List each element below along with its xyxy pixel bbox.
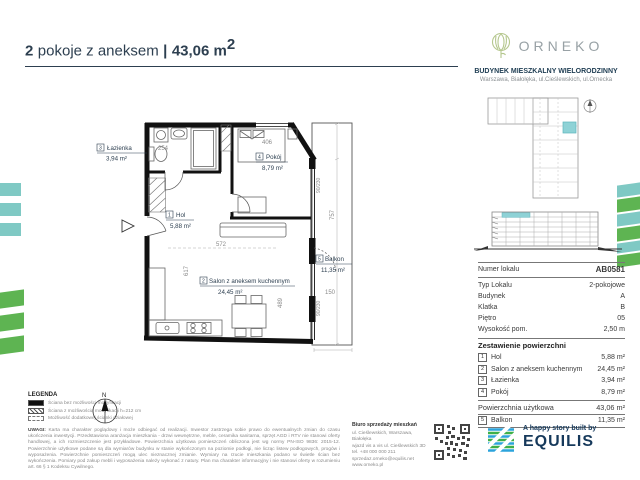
- equilis-name: EQUILIS: [523, 433, 596, 451]
- dining-table: [232, 304, 266, 328]
- compass-north-label: N: [102, 393, 106, 399]
- svg-text:Hol: Hol: [176, 212, 185, 219]
- chair: [251, 329, 262, 337]
- door-swings: [147, 172, 336, 271]
- building-type: BUDYNEK MIESZKALNY WIELORODZINNY: [468, 68, 624, 75]
- dim-757: 757: [330, 209, 336, 220]
- room-area: 3,94 m²: [601, 375, 625, 387]
- dim-254: 254: [158, 146, 169, 152]
- area-summary-title: Zestawienie powierzchni: [478, 339, 625, 352]
- usable-area-row: Powierzchnia użytkowa 43,06 m²: [478, 401, 625, 414]
- dim-406: 406: [262, 140, 273, 146]
- office-website: www.orneko.pl: [352, 463, 426, 470]
- keyplan-drawing: [478, 96, 600, 204]
- room-number-badge: 3: [478, 376, 487, 385]
- room-area-row: 3Łazienka 3,94 m²: [478, 375, 625, 387]
- room-number-badge: 4: [478, 388, 487, 397]
- room-area-row: 2Salon z aneksem kuchennym 24,45 m²: [478, 364, 625, 376]
- svg-text:Łazienka: Łazienka: [107, 145, 132, 152]
- room-number-badge: 1: [478, 353, 487, 362]
- unit-info-table: Numer lokalu AB0581 Typ Lokalu 2-pokojow…: [478, 262, 625, 428]
- orneko-leaf-icon: [489, 32, 513, 60]
- room-number-badge: 2: [478, 365, 487, 374]
- info-row: Budynek A: [478, 291, 625, 302]
- uwagi-text: Karta ma charakter poglądowy i może odbi…: [28, 428, 340, 470]
- info-row: Typ Lokalu 2-pokojowe: [478, 280, 625, 291]
- dim-617: 617: [184, 265, 190, 276]
- dashed-wall-swatch: [28, 416, 44, 421]
- info-label: Piętro: [478, 313, 496, 324]
- floor-plan: 254 406 572 617 489 757 150 90/230 90/23…: [70, 98, 465, 398]
- equilis-tagline: A happy story built by: [523, 425, 596, 432]
- toilet: [149, 147, 154, 161]
- info-label: Typ Lokalu: [478, 280, 512, 291]
- room-number-badge: 5: [478, 416, 487, 425]
- usable-area-value: 43,06 m²: [596, 401, 625, 414]
- office-address-line: ul. Cieślewskich, Warszawa, Białołęka: [352, 431, 426, 444]
- title-area: 43,06 m: [172, 42, 227, 59]
- svg-text:5,88 m²: 5,88 m²: [170, 223, 191, 230]
- teal-stripe: [0, 223, 21, 236]
- room-area: 11,35 m²: [598, 415, 625, 427]
- outer-walls: [144, 123, 315, 342]
- usable-area-label: Powierzchnia użytkowa: [478, 401, 554, 414]
- info-row: Klatka B: [478, 302, 625, 313]
- title-area-sup: 2: [227, 36, 235, 53]
- label-lazienka: 3 Łazienka 3,94 m²: [97, 144, 147, 163]
- svg-text:Balkon: Balkon: [325, 256, 344, 263]
- room-count: 2: [25, 42, 33, 59]
- info-label: Wysokość pom.: [478, 324, 527, 335]
- dim-572: 572: [216, 242, 227, 248]
- svg-text:Pokój: Pokój: [266, 154, 281, 161]
- equilis-logo-icon: [486, 425, 516, 455]
- uwagi-label: UWAGI:: [28, 428, 46, 433]
- brand-block: ORNEKO BUDYNEK MIESZKALNY WIELORODZINNY …: [468, 32, 624, 83]
- stove: [187, 323, 211, 334]
- dim-489: 489: [278, 297, 284, 308]
- solid-wall-swatch: [28, 400, 44, 406]
- sofa: [220, 223, 286, 237]
- room-label: Pokój: [491, 387, 509, 399]
- numer-lokalu-label: Numer lokalu: [478, 263, 519, 277]
- info-label: Budynek: [478, 291, 505, 302]
- apartment-card-page: { "header": { "rooms": "2", "title": "po…: [0, 0, 640, 480]
- room-area-row: 1Hol 5,88 m²: [478, 352, 625, 364]
- dim-window: 90/230: [316, 177, 322, 193]
- kitchen-cabinet: [149, 268, 165, 320]
- title-separator: |: [163, 42, 167, 59]
- svg-text:Salon z aneksem kuchennym: Salon z aneksem kuchennym: [209, 278, 290, 285]
- elevation-drawing: [472, 208, 624, 258]
- green-stripe: [0, 289, 24, 308]
- chair: [235, 296, 246, 304]
- bedroom-window: [256, 122, 288, 129]
- info-value: A: [620, 291, 625, 302]
- label-balkon: 5 Balkon 11,35 m²: [316, 255, 352, 274]
- dim-window: 90/230: [316, 300, 322, 316]
- qr-code: [433, 423, 471, 461]
- info-value: B: [620, 302, 625, 313]
- room-area: 8,79 m²: [601, 387, 625, 399]
- label-pokoj: 4 Pokój 8,79 m²: [256, 153, 288, 172]
- title-text: pokoje z aneksem: [38, 42, 159, 59]
- svg-text:8,79 m²: 8,79 m²: [262, 165, 283, 172]
- building-address: Warszawa, Białołęka, ul.Cieślewskich, ul…: [468, 77, 624, 83]
- label-hol: 1 Hol 5,88 m²: [166, 211, 194, 230]
- uwagi-note: UWAGI: Karta ma charakter poglądowy i mo…: [28, 428, 340, 471]
- brand-name: ORNEKO: [519, 38, 604, 54]
- keyplan-compass-icon: [584, 99, 596, 113]
- info-label: Klatka: [478, 302, 497, 313]
- green-stripe: [0, 312, 24, 331]
- svg-text:4: 4: [258, 155, 261, 161]
- svg-text:3: 3: [99, 146, 102, 152]
- room-area: 24,45 m²: [597, 364, 625, 376]
- entrance-arrow-icon: [122, 220, 134, 232]
- room-label: Salon z aneksem kuchennym: [491, 364, 582, 376]
- sales-office-block: Biuro sprzedaży mieszkań ul. Cieślewskic…: [352, 422, 426, 470]
- numer-lokalu-row: Numer lokalu AB0581: [478, 263, 625, 277]
- room-label: Hol: [491, 352, 502, 364]
- svg-text:5: 5: [318, 257, 321, 263]
- hatched-wall-swatch: [28, 408, 44, 414]
- svg-text:24,45 m²: 24,45 m²: [218, 289, 242, 296]
- numer-lokalu-value: AB0581: [596, 263, 625, 277]
- label-salon: 2 Salon z aneksem kuchennym 24,45 m²: [200, 277, 295, 296]
- elevation-unit-highlight: [502, 213, 530, 218]
- green-stripe: [0, 335, 24, 354]
- svg-text:1: 1: [168, 213, 171, 219]
- interior-walls: [147, 123, 311, 219]
- office-title: Biuro sprzedaży mieszkań: [352, 422, 426, 429]
- dresser: [238, 197, 266, 213]
- svg-text:3,94 m²: 3,94 m²: [106, 156, 127, 163]
- dim-150: 150: [325, 290, 336, 296]
- room-area: 5,88 m²: [601, 352, 625, 364]
- room-area-row: 4Pokój 8,79 m²: [478, 387, 625, 399]
- keyplan-unit-highlight: [563, 122, 576, 133]
- kitchen-sink: [156, 323, 179, 334]
- teal-stripe: [617, 182, 640, 197]
- equilis-block: A happy story built by EQUILIS: [486, 425, 596, 455]
- chair: [235, 329, 246, 337]
- page-title: 2 pokoje z aneksem | 43,06 m2: [25, 36, 458, 67]
- compass-icon: N: [88, 390, 122, 428]
- svg-text:2: 2: [202, 279, 205, 285]
- info-row: Wysokość pom. 2,50 m: [478, 324, 625, 335]
- info-value: 05: [617, 313, 625, 324]
- chair: [251, 296, 262, 304]
- info-row: Piętro 05: [478, 313, 625, 324]
- teal-stripe: [0, 203, 21, 216]
- shower: [191, 128, 216, 169]
- teal-stripe: [0, 183, 21, 196]
- room-label: Łazienka: [491, 375, 519, 387]
- info-value: 2,50 m: [604, 324, 625, 335]
- info-value: 2-pokojowe: [589, 280, 625, 291]
- svg-text:11,35 m²: 11,35 m²: [321, 267, 345, 274]
